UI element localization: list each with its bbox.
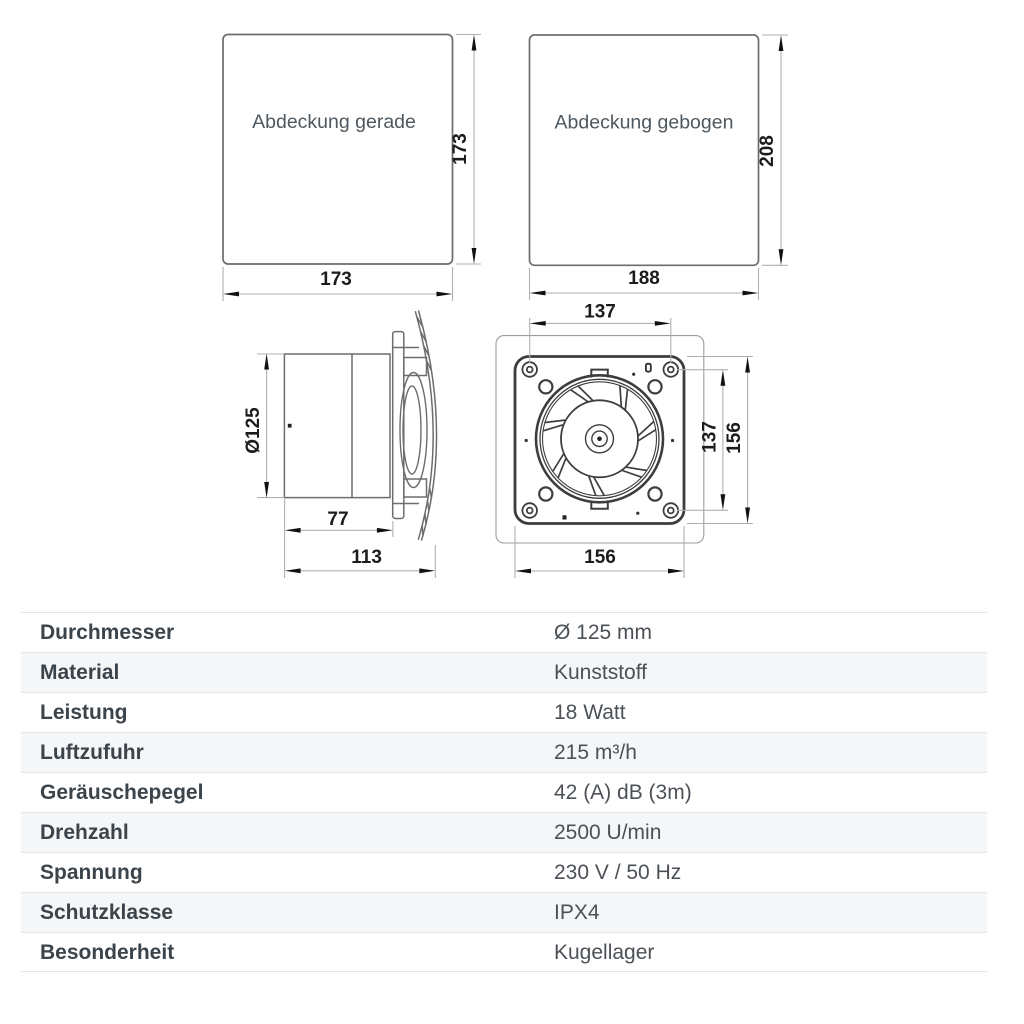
- svg-text:77: 77: [327, 509, 348, 530]
- svg-text:188: 188: [628, 268, 660, 289]
- svg-text:Abdeckung gerade: Abdeckung gerade: [252, 111, 416, 133]
- svg-text:173: 173: [320, 269, 352, 290]
- svg-text:113: 113: [351, 547, 382, 568]
- svg-text:156: 156: [724, 422, 745, 454]
- svg-text:137: 137: [699, 421, 720, 453]
- svg-text:Abdeckung gebogen: Abdeckung gebogen: [555, 112, 734, 134]
- svg-text:208: 208: [757, 135, 778, 167]
- svg-text:137: 137: [584, 302, 616, 323]
- svg-text:173: 173: [450, 133, 471, 165]
- svg-text:156: 156: [584, 547, 616, 568]
- svg-text:Ø125: Ø125: [243, 407, 264, 454]
